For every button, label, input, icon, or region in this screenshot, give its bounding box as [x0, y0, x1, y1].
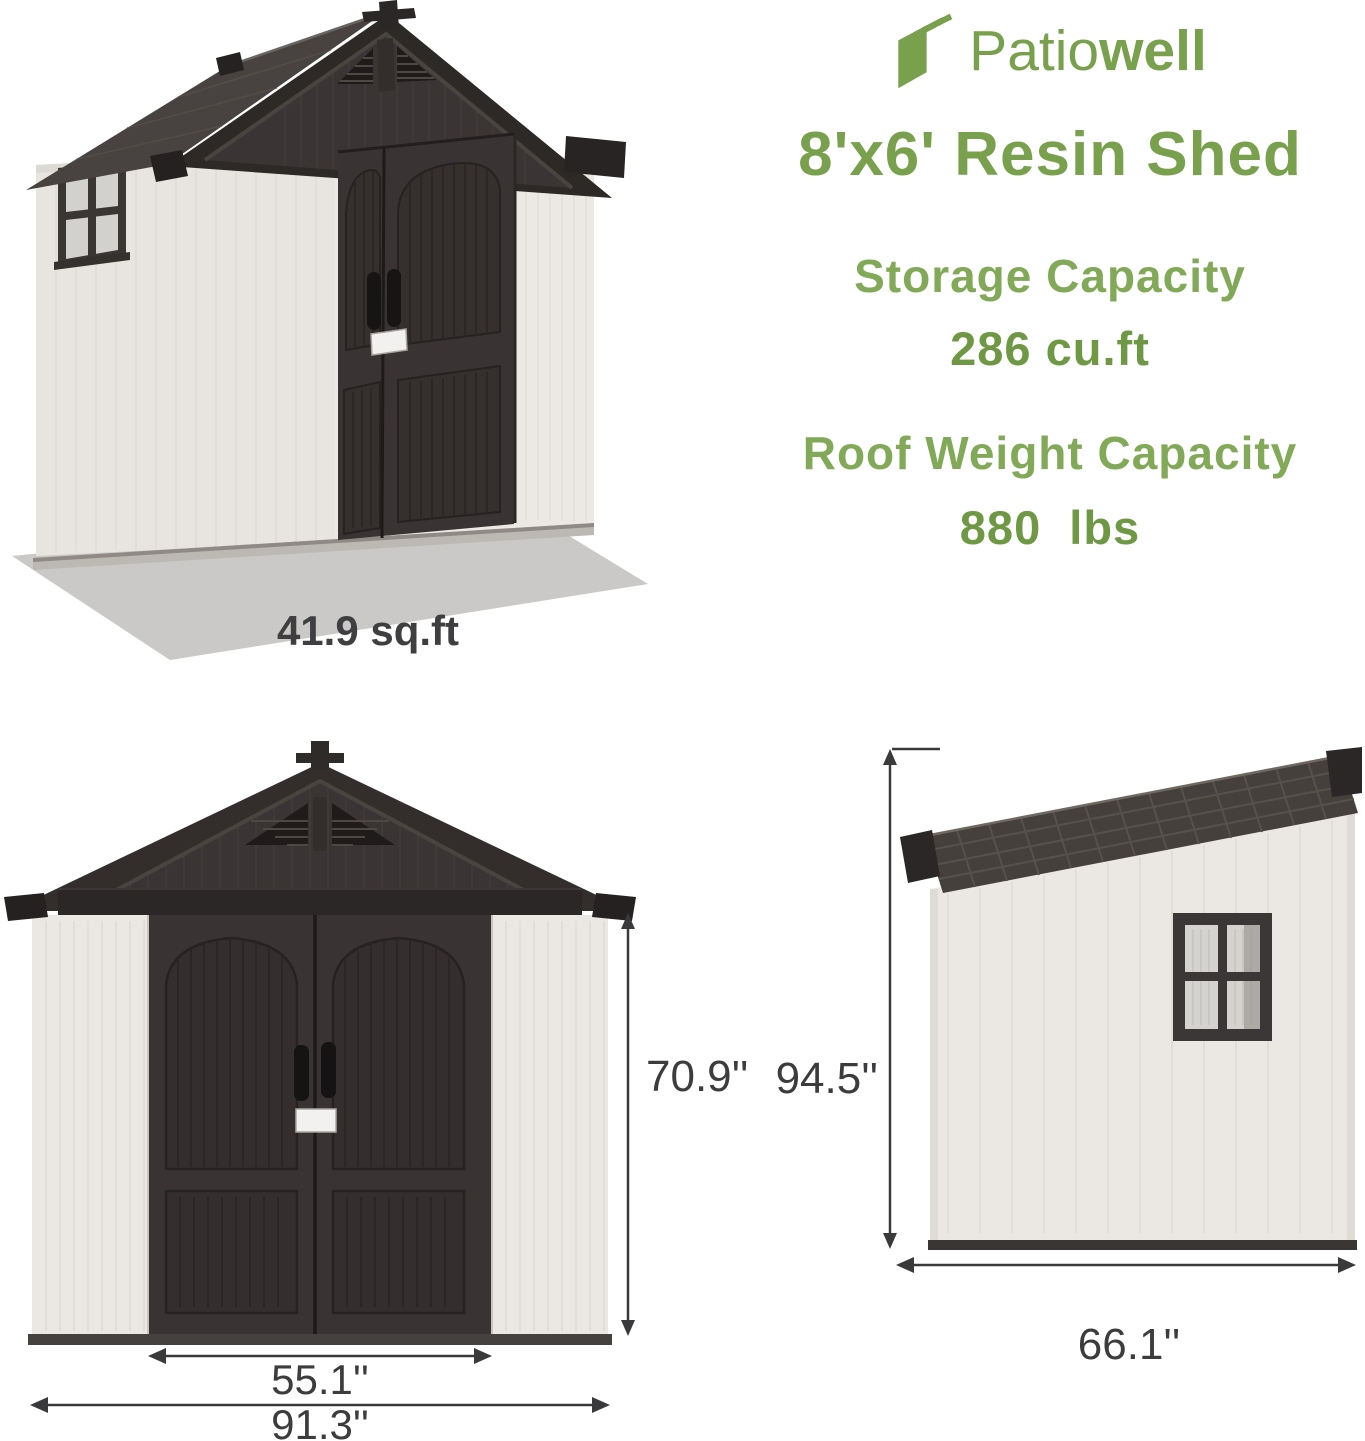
product-infographic: 41.9 sq.ft Patiowell 8'x6' Resin Shed St…: [0, 0, 1365, 1441]
perspective-view: 41.9 sq.ft: [0, 0, 760, 700]
spec-value-storage: 286 cu.ft: [770, 321, 1330, 376]
side-base-rail: [928, 1240, 1357, 1250]
brand-logo: Patiowell: [770, 10, 1330, 92]
perspective-shed-illustration: 41.9 sq.ft: [0, 0, 760, 700]
fanned-panels-icon: [893, 10, 955, 92]
door-lower-panel-right: [398, 366, 500, 522]
dim-side-width: [896, 1257, 1356, 1273]
double-doors: [338, 134, 515, 540]
footprint-caption: 41.9 sq.ft: [277, 607, 459, 654]
dim-front-height: [621, 913, 635, 1336]
dim-door-width-label: 55.1'': [271, 1356, 369, 1403]
front-base-rail: [28, 1334, 612, 1345]
front-double-doors: [148, 915, 492, 1334]
product-title: 8'x6' Resin Shed: [770, 122, 1330, 187]
front-door-panel-left: [166, 938, 297, 1169]
side-view: 94.5'' 66.1'': [760, 741, 1365, 1441]
dim-side-height-label: 94.5'': [776, 1054, 878, 1103]
right-eave-cap: [564, 136, 626, 178]
side-view-window: [1173, 913, 1272, 1041]
door-handles: [367, 272, 381, 330]
dim-side-width-label: 66.1'': [1078, 1320, 1180, 1369]
dim-front-height-label: 70.9'': [646, 1052, 748, 1101]
front-shed-illustration: 70.9'' 55.1'' 91.3'': [0, 741, 780, 1441]
spec-panel: Patiowell 8'x6' Resin Shed Storage Capac…: [770, 10, 1330, 555]
dim-overall-width-label: 91.3'': [271, 1401, 369, 1441]
side-right-ridge-cap: [1326, 747, 1362, 797]
spec-label-storage: Storage Capacity: [770, 249, 1330, 303]
front-view: 70.9'' 55.1'' 91.3'': [0, 741, 780, 1441]
front-door-panel-right: [333, 938, 464, 1169]
front-left-eave-cap: [4, 893, 48, 921]
brand-name: Patiowell: [969, 20, 1207, 83]
spec-label-roof: Roof Weight Capacity: [770, 426, 1330, 480]
roof: [26, 0, 626, 198]
spec-value-roof: 880 lbs: [770, 500, 1330, 555]
side-shed-illustration: 94.5'' 66.1'': [760, 741, 1365, 1441]
door-panel-right: [398, 163, 500, 345]
front-door-handles: [294, 1045, 309, 1101]
front-door-latch: [296, 1109, 336, 1132]
door-latch: [371, 329, 407, 355]
